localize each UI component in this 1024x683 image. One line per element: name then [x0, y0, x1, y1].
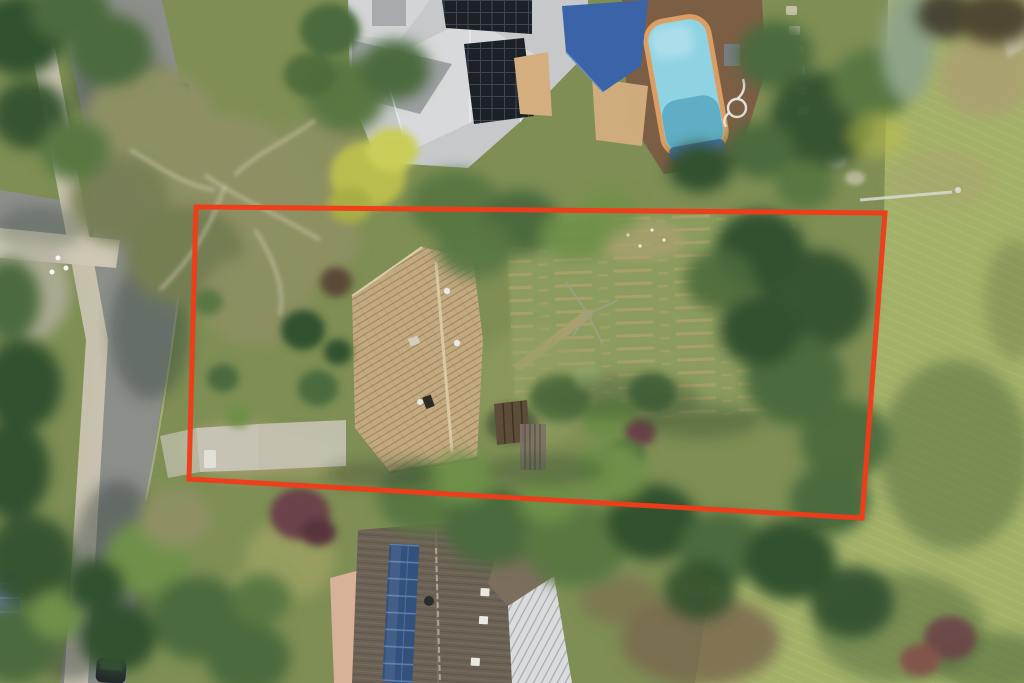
roof-vent — [417, 399, 423, 405]
roof-vent — [444, 288, 450, 294]
person-on-roof — [424, 596, 434, 606]
courtyard — [514, 52, 552, 116]
aerial-photo — [0, 0, 1024, 683]
roof-vent — [454, 340, 460, 346]
trailer — [204, 450, 216, 468]
aerial-photo-canvas — [0, 0, 1024, 683]
